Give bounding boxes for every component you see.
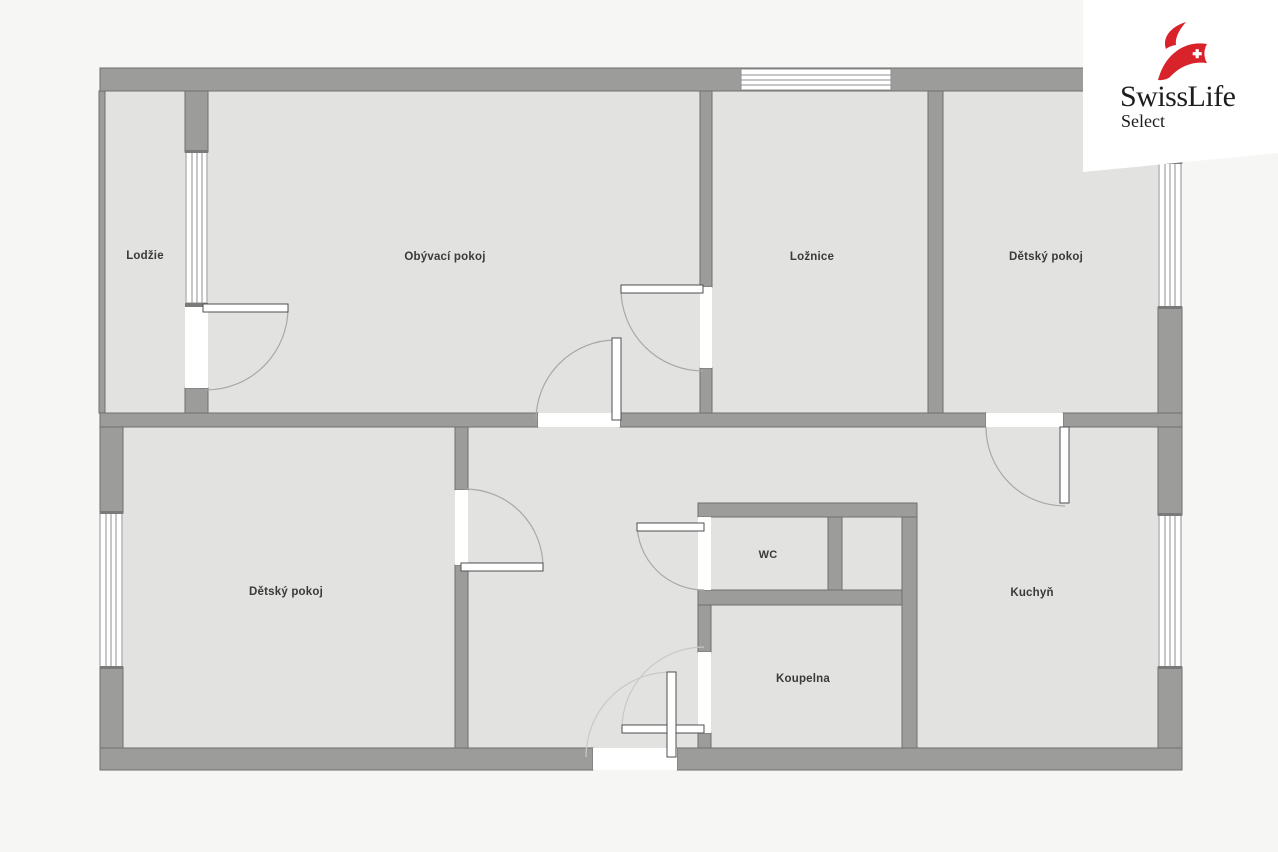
room-label-wc: WC <box>759 549 778 561</box>
leaf-detsky-dolni-door <box>461 563 543 571</box>
floor-hall-kitchen <box>468 427 1158 748</box>
room-label-kuchyn: Kuchyň <box>1010 587 1053 599</box>
wall-wc-top <box>698 503 917 517</box>
wall-lodzie-bottom <box>185 388 208 413</box>
opening-loznice-door <box>700 287 712 368</box>
wall-right-b <box>1158 307 1182 515</box>
window-right-detsky-horni <box>1158 161 1182 309</box>
wall-left-lower-a <box>100 427 123 513</box>
opening-detsky-dolni-door <box>455 490 468 565</box>
wall-mid-band-a <box>100 413 538 427</box>
wall-koupelna-left-b <box>698 733 711 748</box>
window-left-detsky-dolni <box>100 511 123 669</box>
opening-detsky-horni-door <box>986 413 1063 427</box>
floor-plan-page: Lodžie Obývací pokoj Ložnice Dětský poko… <box>0 0 1278 852</box>
leaf-lodzie-door <box>203 304 288 312</box>
wall-detsky-hall-b <box>455 565 468 748</box>
wall-bottom-left <box>100 748 593 770</box>
wall-koupelna-left-a <box>698 605 711 652</box>
leaf-obyvaci-hall-door <box>612 338 621 420</box>
room-label-koupelna: Koupelna <box>776 673 830 685</box>
opening-lodzie-door <box>185 305 208 388</box>
wall-wc-koupelna <box>698 590 917 605</box>
window-lodzie <box>185 150 208 307</box>
opening-entrance-door <box>593 748 677 770</box>
wall-obyvaci-loznice-bottom <box>700 368 712 413</box>
wall-left-lower-b <box>100 667 123 748</box>
leaf-detsky-horni-door <box>1060 427 1069 503</box>
wall-lodzie-railing <box>99 91 105 413</box>
wall-shaft-divider <box>828 517 842 590</box>
logo-sub-text: Select <box>1121 112 1165 130</box>
wall-loznice-detsky <box>928 91 943 413</box>
leaf-entrance-door <box>667 672 676 757</box>
leaf-loznice-door <box>621 285 703 293</box>
wall-block-right <box>902 517 917 748</box>
opening-obyvaci-hall-door <box>538 413 620 427</box>
room-label-loznice: Ložnice <box>790 251 834 263</box>
wall-lodzie-top <box>185 91 208 152</box>
room-label-detsky-pokoj-horni: Dětský pokoj <box>1009 251 1083 263</box>
leaf-koupelna-door <box>622 725 704 733</box>
swisslife-flag-icon <box>1148 14 1218 84</box>
wall-bottom-right <box>677 748 1182 770</box>
wall-mid-band-b <box>620 413 986 427</box>
window-loznice-top <box>741 69 891 90</box>
swisslife-logo-panel: SwissLife Select <box>1083 0 1278 172</box>
room-label-lodzie: Lodžie <box>126 250 164 262</box>
logo-brand-text: SwissLife <box>1120 82 1236 112</box>
window-right-kuchyn <box>1158 513 1182 669</box>
wall-obyvaci-loznice-top <box>700 91 712 287</box>
leaf-wc-door <box>637 523 704 531</box>
room-label-detsky-pokoj-dolni: Dětský pokoj <box>249 586 323 598</box>
wall-top <box>100 68 1182 91</box>
opening-koupelna-door <box>698 652 711 733</box>
wall-right-c <box>1158 667 1182 748</box>
room-label-obyvaci-pokoj: Obývací pokoj <box>404 251 485 263</box>
wall-detsky-hall-a <box>455 427 468 490</box>
wall-mid-band-c <box>1063 413 1182 427</box>
